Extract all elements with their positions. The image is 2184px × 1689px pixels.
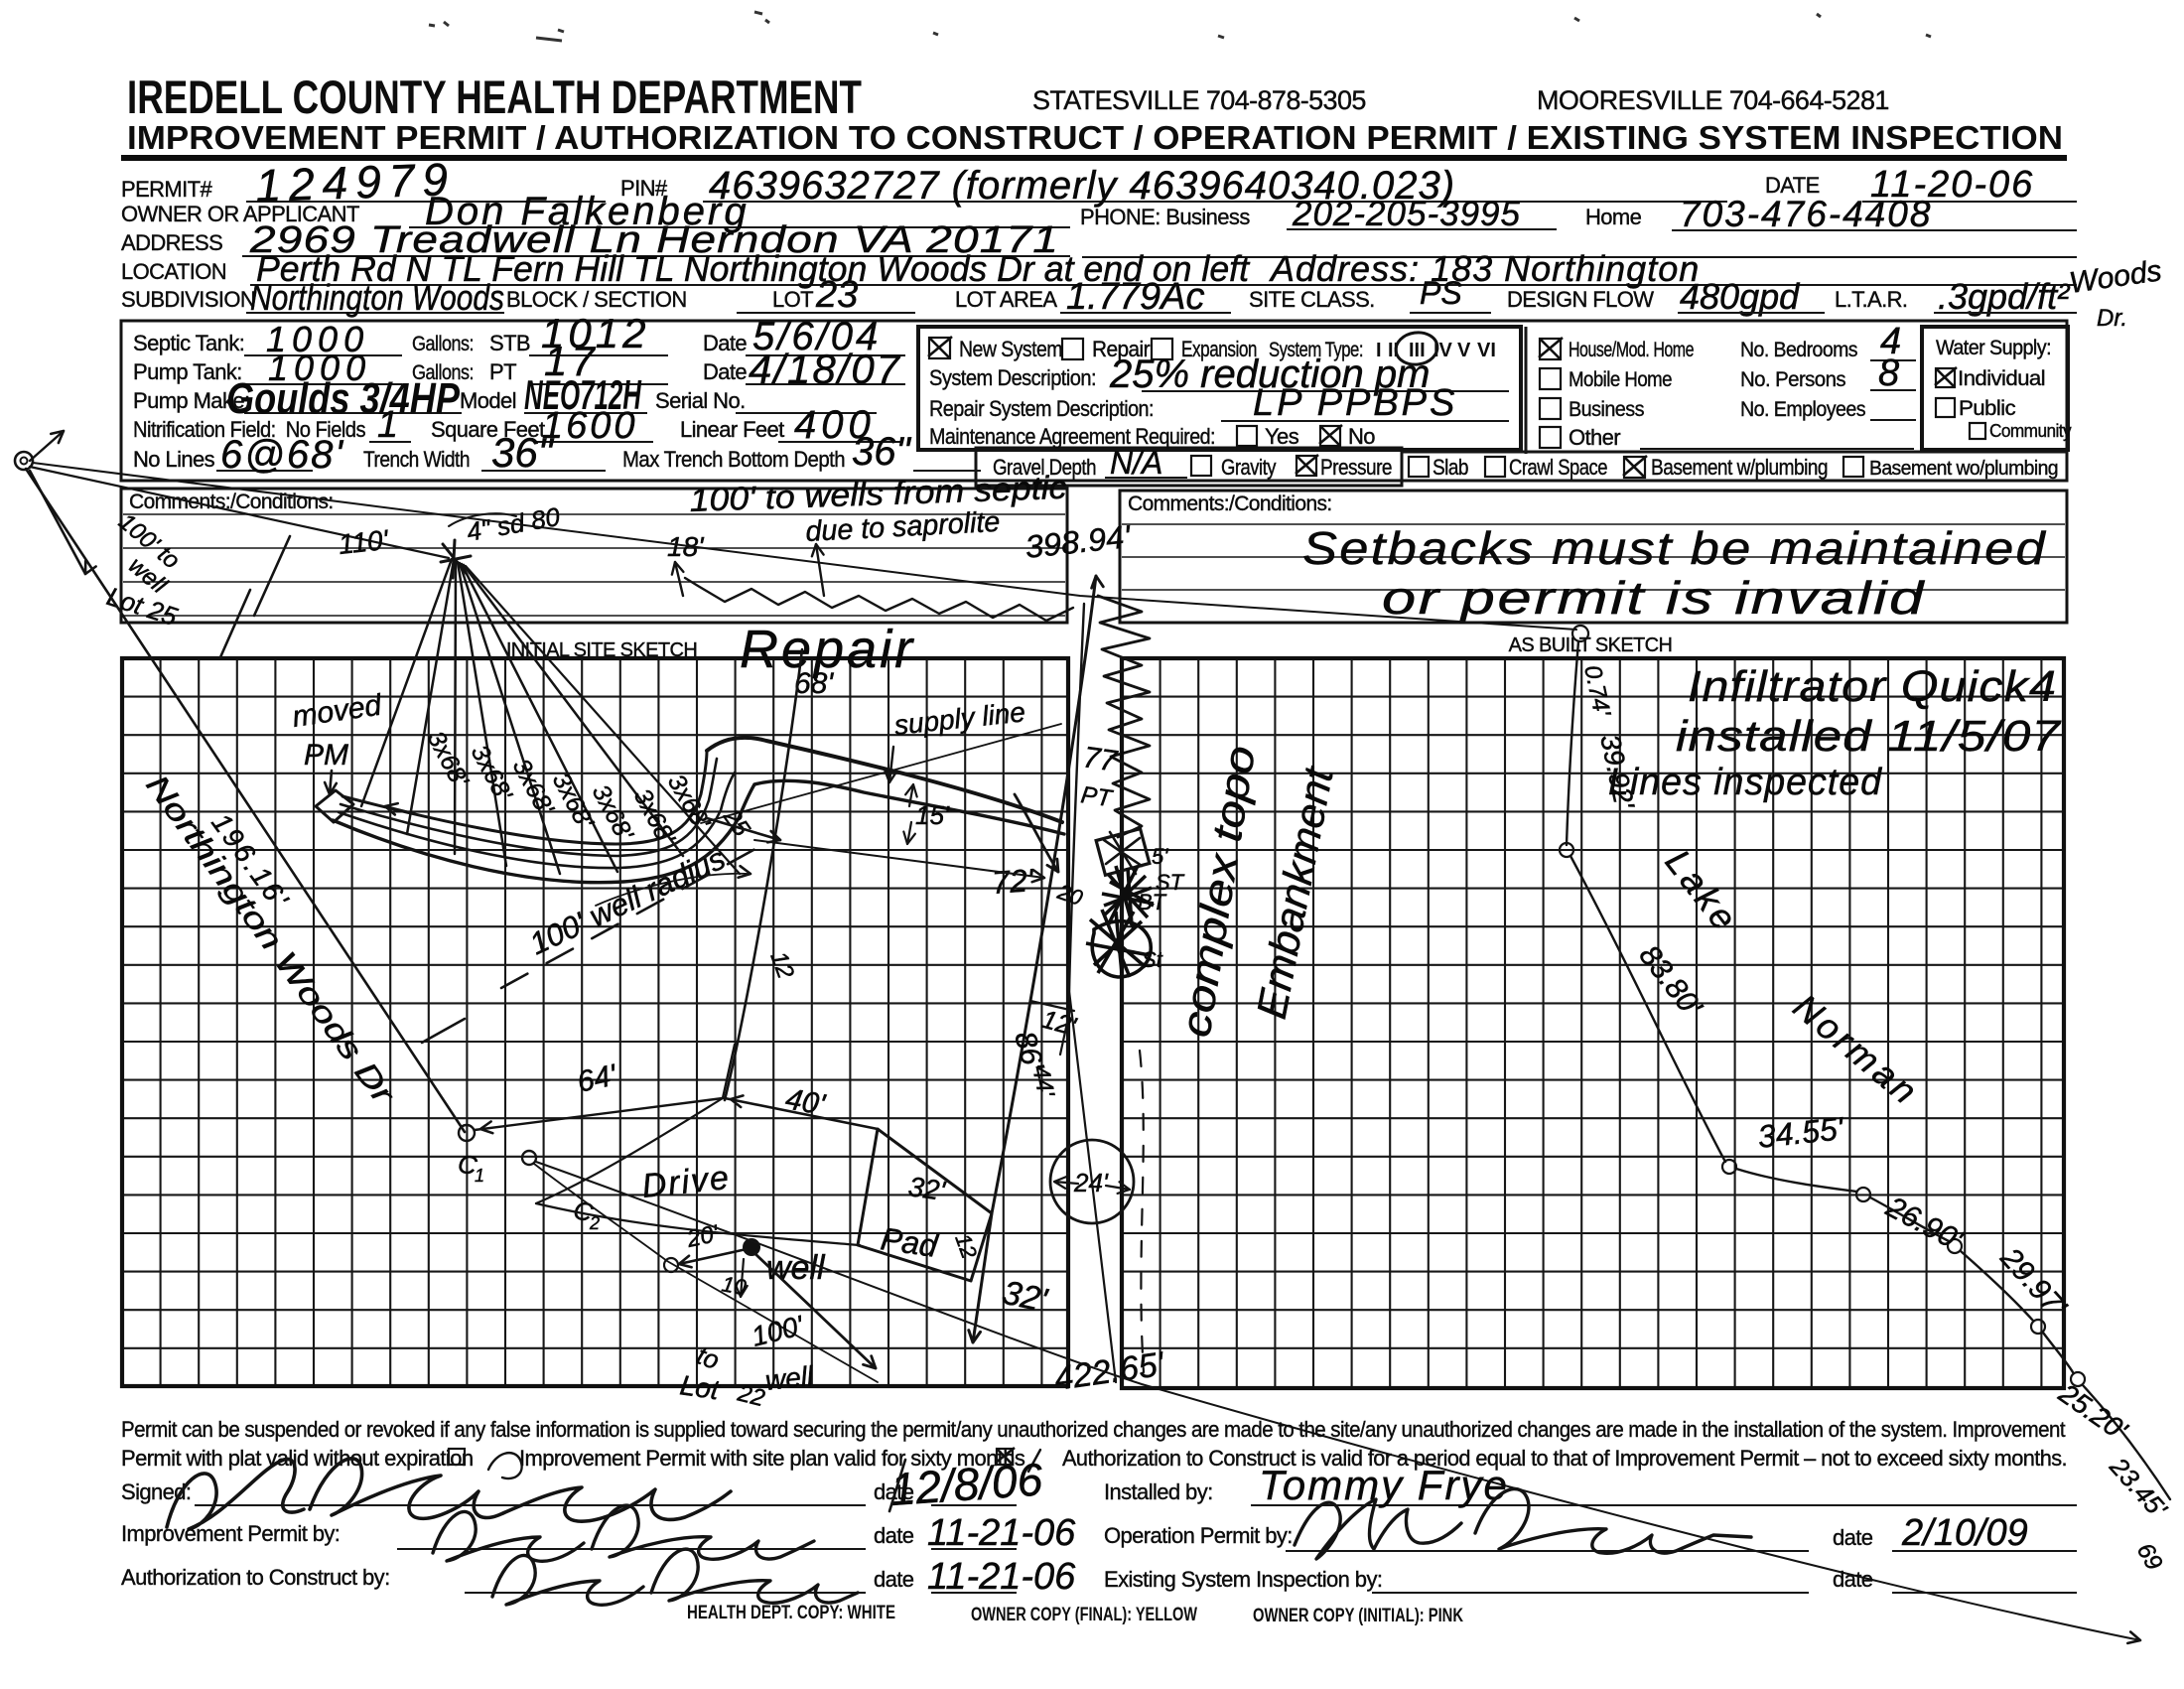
svg-text:Business: Business xyxy=(1569,398,1644,421)
svg-text:Operation Permit by:: Operation Permit by: xyxy=(1104,1523,1293,1548)
svg-text:OWNER COPY (FINAL): YELLOW: OWNER COPY (FINAL): YELLOW xyxy=(971,1605,1197,1625)
svg-text:Comments:/Conditions:: Comments:/Conditions: xyxy=(1128,493,1332,515)
svg-text:Slab: Slab xyxy=(1433,455,1468,480)
svg-text:PT: PT xyxy=(1079,781,1115,812)
svg-text:Home: Home xyxy=(1585,205,1642,229)
svg-text:110': 110' xyxy=(337,524,391,560)
svg-text:No: No xyxy=(1348,424,1375,449)
svg-text:No. Bedrooms: No. Bedrooms xyxy=(1740,339,1857,361)
svg-text:Installed by:: Installed by: xyxy=(1104,1479,1213,1504)
svg-text:Other: Other xyxy=(1569,425,1620,450)
svg-text:.3gpd/ft²: .3gpd/ft² xyxy=(1938,276,2071,317)
svg-text:date: date xyxy=(1833,1567,1873,1592)
svg-text:11-21-06: 11-21-06 xyxy=(927,1556,1076,1598)
svg-text:32': 32' xyxy=(906,1171,948,1206)
svg-text:Improvement Permit by:: Improvement Permit by: xyxy=(121,1521,340,1546)
svg-text:40': 40' xyxy=(783,1082,828,1122)
svg-text:No. Employees: No. Employees xyxy=(1740,398,1865,421)
svg-text:77': 77' xyxy=(1081,741,1126,778)
svg-text:No Lines: No Lines xyxy=(133,447,215,472)
svg-text:Setbacks must be maintained: Setbacks must be maintained xyxy=(1302,522,2047,574)
svg-text:Linear Feet: Linear Feet xyxy=(680,417,784,442)
svg-text:Northington Woods: Northington Woods xyxy=(250,277,504,318)
svg-text:LOT: LOT xyxy=(772,287,813,312)
svg-text:Authorization to Construct is: Authorization to Construct is valid for … xyxy=(1062,1446,2067,1471)
svg-text:4/18/07: 4/18/07 xyxy=(749,346,901,392)
svg-text:St: St xyxy=(1142,947,1163,972)
svg-text:Goulds 3/4HP: Goulds 3/4HP xyxy=(226,374,461,423)
svg-text:5': 5' xyxy=(1152,844,1168,869)
svg-text:Trench Width: Trench Width xyxy=(363,447,470,472)
svg-text:VI: VI xyxy=(1477,340,1496,361)
svg-text:Permit with plat valid without: Permit with plat valid without expiratio… xyxy=(121,1446,473,1471)
svg-text:PM: PM xyxy=(304,739,348,772)
svg-text:No. Persons: No. Persons xyxy=(1740,368,1845,391)
svg-text:Maintenance Agreement Required: Maintenance Agreement Required: xyxy=(929,424,1215,449)
svg-text:SITE CLASS.: SITE CLASS. xyxy=(1249,287,1375,312)
svg-text:V: V xyxy=(1457,340,1471,361)
svg-text:480gpd: 480gpd xyxy=(1680,276,1800,317)
svg-text:12/8/06: 12/8/06 xyxy=(888,1453,1044,1515)
svg-text:36": 36" xyxy=(491,429,555,476)
svg-text:AS BUILT SKETCH: AS BUILT SKETCH xyxy=(1509,634,1673,656)
svg-text:8: 8 xyxy=(1878,352,1899,394)
svg-text:New System: New System xyxy=(959,337,1062,361)
svg-text:OWNER COPY (INITIAL): PINK: OWNER COPY (INITIAL): PINK xyxy=(1253,1606,1463,1626)
svg-text:or permit is invalid: or permit is invalid xyxy=(1382,572,1926,624)
svg-text:date: date xyxy=(874,1567,914,1592)
svg-text:1.779Ac: 1.779Ac xyxy=(1066,276,1204,318)
svg-text:Community: Community xyxy=(1989,421,2072,441)
svg-text:System Description:: System Description: xyxy=(929,365,1096,390)
svg-text:Basement w/plumbing: Basement w/plumbing xyxy=(1651,455,1828,480)
svg-text:Infiltrator Quick4: Infiltrator Quick4 xyxy=(1688,662,2057,711)
svg-text:Yes: Yes xyxy=(1265,424,1299,449)
svg-text:Lines inspected: Lines inspected xyxy=(1608,762,1883,803)
svg-text:Authorization to Construct by:: Authorization to Construct by: xyxy=(121,1565,390,1590)
svg-text:BLOCK / SECTION: BLOCK / SECTION xyxy=(506,287,687,312)
svg-text:Serial No.: Serial No. xyxy=(655,388,746,413)
svg-text:HEALTH DEPT. COPY: WHITE: HEALTH DEPT. COPY: WHITE xyxy=(687,1603,895,1623)
svg-text:Basement wo/plumbing: Basement wo/plumbing xyxy=(1869,458,2058,480)
svg-text:well: well xyxy=(766,1249,826,1287)
svg-text:IREDELL COUNTY HEALTH DEPARTME: IREDELL COUNTY HEALTH DEPARTMENT xyxy=(127,70,862,123)
svg-text:Date: Date xyxy=(703,331,747,355)
svg-text:Dr.: Dr. xyxy=(2097,305,2127,332)
svg-text:ADDRESS: ADDRESS xyxy=(121,230,222,255)
svg-text:PS: PS xyxy=(1420,275,1462,311)
svg-text:PERMIT#: PERMIT# xyxy=(121,177,213,202)
svg-text:Address: 183 Northington: Address: 183 Northington xyxy=(1269,248,1700,289)
svg-text:well: well xyxy=(763,1360,815,1396)
svg-text:36": 36" xyxy=(852,430,911,474)
svg-text:Max Trench Bottom Depth: Max Trench Bottom Depth xyxy=(622,447,845,472)
svg-text:Existing System Inspection by:: Existing System Inspection by: xyxy=(1104,1567,1382,1592)
svg-text:Pressure: Pressure xyxy=(1320,455,1392,480)
svg-text:Repair System Description:: Repair System Description: xyxy=(929,396,1154,421)
svg-text:LP PPBPS: LP PPBPS xyxy=(1253,382,1457,424)
svg-text:BT: BT xyxy=(1138,890,1167,915)
svg-text:N/A: N/A xyxy=(1110,445,1162,481)
svg-text:Tommy Frye: Tommy Frye xyxy=(1259,1462,1509,1508)
svg-text:72': 72' xyxy=(991,862,1036,901)
svg-text:MOORESVILLE 704-664-5281: MOORESVILLE 704-664-5281 xyxy=(1537,85,1889,115)
svg-text:STB: STB xyxy=(489,331,530,355)
svg-text:PT: PT xyxy=(489,359,516,384)
svg-text:L.T.A.R.: L.T.A.R. xyxy=(1835,287,1907,312)
svg-text:Gallons:: Gallons: xyxy=(412,333,474,355)
svg-text:LOT AREA: LOT AREA xyxy=(955,287,1057,312)
svg-text:1: 1 xyxy=(377,404,398,446)
svg-text:Water Supply:: Water Supply: xyxy=(1936,337,2051,359)
svg-text:Mobile Home: Mobile Home xyxy=(1569,368,1672,391)
svg-text:6@68': 6@68' xyxy=(220,433,344,477)
svg-text:1600: 1600 xyxy=(542,405,638,447)
svg-text:Public: Public xyxy=(1959,397,2015,420)
svg-text:2/10/09: 2/10/09 xyxy=(1901,1512,2028,1554)
svg-text:10: 10 xyxy=(720,1271,749,1300)
svg-text:Permit can be suspended or rev: Permit can be suspended or revoked if an… xyxy=(121,1417,2065,1442)
svg-text:Gravity: Gravity xyxy=(1221,455,1276,480)
svg-text:House/Mod. Home: House/Mod. Home xyxy=(1569,339,1694,361)
svg-text:LOCATION: LOCATION xyxy=(121,259,226,284)
svg-text:Lot: Lot xyxy=(678,1369,722,1405)
svg-text:Septic Tank:: Septic Tank: xyxy=(133,331,244,355)
svg-text:Model: Model xyxy=(460,388,516,413)
svg-text:SUBDIVISION: SUBDIVISION xyxy=(121,287,255,312)
svg-text:Crawl Space: Crawl Space xyxy=(1509,455,1607,480)
svg-text:IMPROVEMENT PERMIT / AUTHORIZA: IMPROVEMENT PERMIT / AUTHORIZATION TO CO… xyxy=(127,119,2063,156)
svg-text:15': 15' xyxy=(915,800,950,830)
svg-text:202-205-3995: 202-205-3995 xyxy=(1292,195,1521,233)
svg-text:Individual: Individual xyxy=(1958,367,2045,390)
svg-text:date: date xyxy=(874,1523,914,1548)
svg-text:Date: Date xyxy=(703,359,747,384)
svg-text:DESIGN FLOW: DESIGN FLOW xyxy=(1507,287,1654,312)
svg-text:703-476-4408: 703-476-4408 xyxy=(1680,194,1932,234)
svg-text:1: 1 xyxy=(475,1166,484,1186)
svg-text:PHONE: Business: PHONE: Business xyxy=(1080,205,1250,229)
svg-text:installed 11/5/07: installed 11/5/07 xyxy=(1676,712,2062,761)
svg-text:date: date xyxy=(1833,1525,1873,1550)
svg-text:STATESVILLE 704-878-5305: STATESVILLE 704-878-5305 xyxy=(1032,85,1366,115)
svg-text:11-21-06: 11-21-06 xyxy=(927,1512,1076,1554)
svg-text:23: 23 xyxy=(815,274,858,316)
